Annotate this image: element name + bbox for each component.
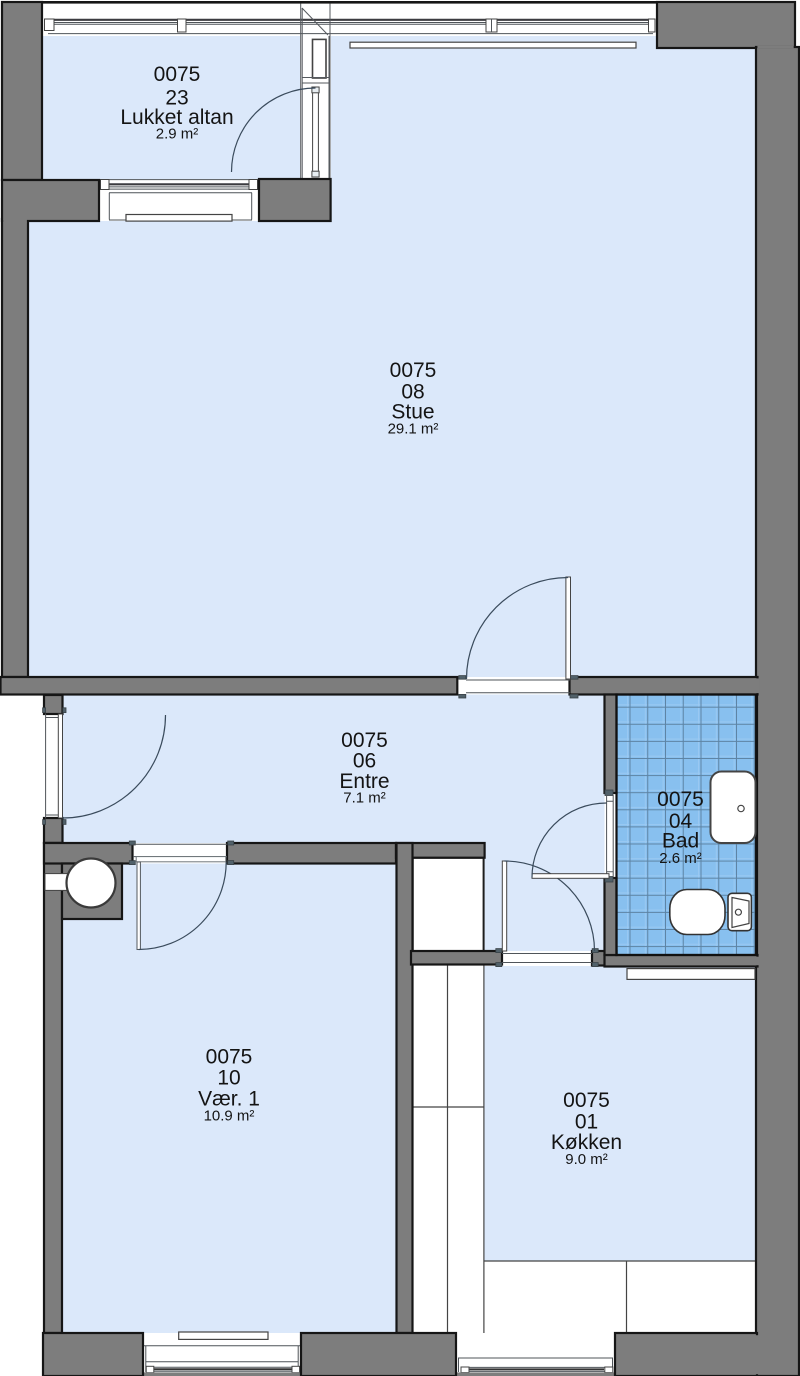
svg-text:10: 10 — [217, 1067, 240, 1090]
svg-text:0075: 0075 — [206, 1046, 253, 1069]
svg-text:2.9 m²: 2.9 m² — [156, 126, 199, 143]
svg-text:0075: 0075 — [657, 788, 704, 811]
svg-text:0075: 0075 — [563, 1089, 610, 1112]
svg-text:2.6 m²: 2.6 m² — [659, 850, 702, 867]
svg-text:0075: 0075 — [390, 359, 437, 382]
svg-text:7.1 m²: 7.1 m² — [343, 790, 386, 807]
svg-text:0075: 0075 — [154, 63, 201, 86]
svg-text:10.9 m²: 10.9 m² — [204, 1108, 255, 1125]
svg-text:9.0 m²: 9.0 m² — [565, 1151, 608, 1168]
svg-text:29.1 m²: 29.1 m² — [388, 421, 439, 438]
